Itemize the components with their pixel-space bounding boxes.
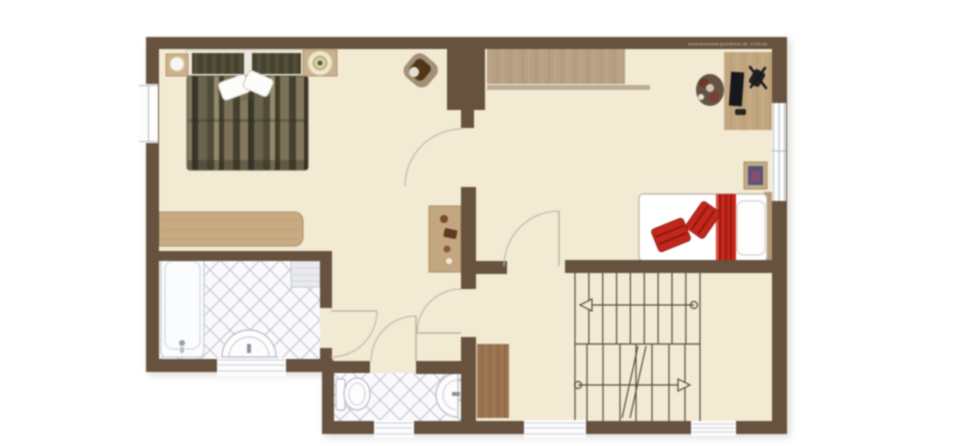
svg-text:www.immowelt-grundrisse.de 21: www.immowelt-grundrisse.de 2103-4a bbox=[688, 42, 768, 47]
